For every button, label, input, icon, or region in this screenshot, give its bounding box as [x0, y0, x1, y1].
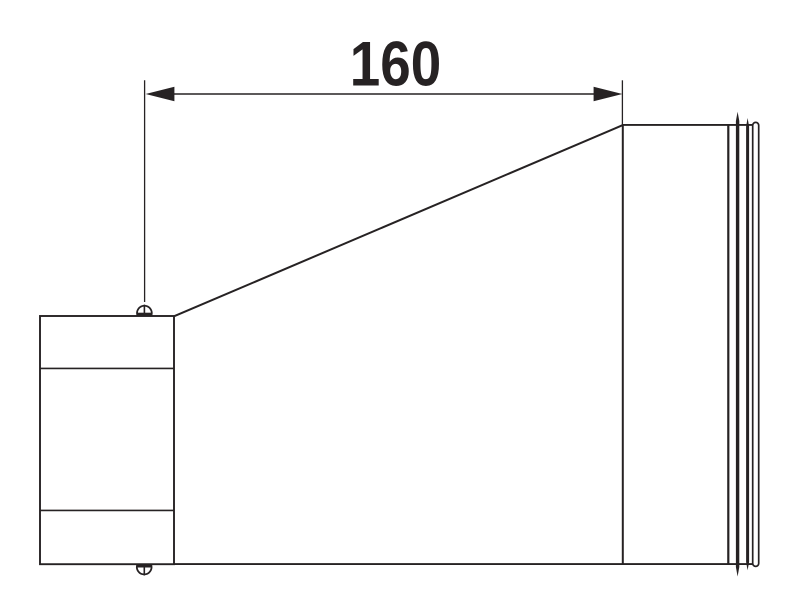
svg-text:160: 160: [350, 29, 441, 99]
